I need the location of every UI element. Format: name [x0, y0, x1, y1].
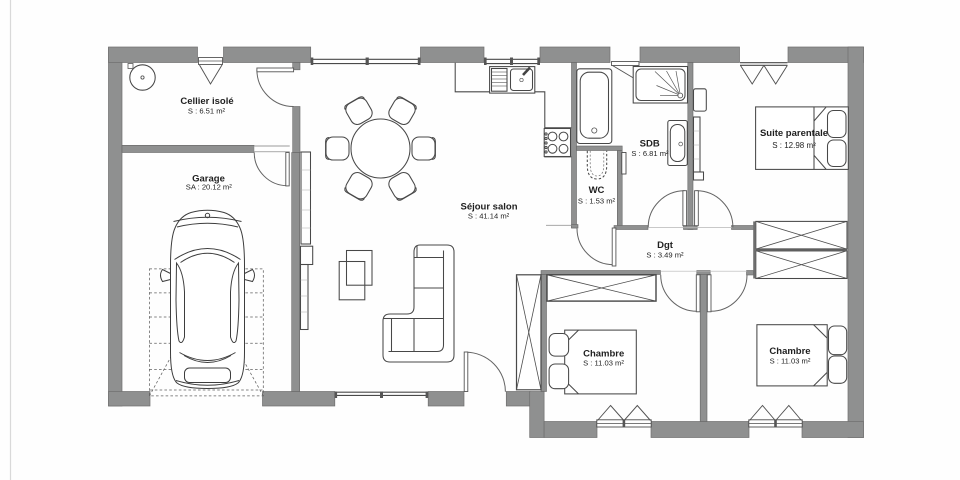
svg-text:S : 3.49 m²: S : 3.49 m² — [646, 251, 684, 260]
svg-text:WC: WC — [589, 185, 605, 196]
svg-text:Chambre: Chambre — [769, 346, 810, 357]
svg-text:S : 11.03 m²: S : 11.03 m² — [770, 357, 811, 366]
svg-text:S : 11.03 m²: S : 11.03 m² — [583, 359, 624, 368]
svg-text:S : 1.53 m²: S : 1.53 m² — [578, 196, 616, 205]
svg-text:S : 41.14 m²: S : 41.14 m² — [468, 211, 510, 220]
svg-text:S : 6.81 m²: S : 6.81 m² — [631, 149, 669, 158]
svg-text:S : 6.51 m²: S : 6.51 m² — [188, 107, 226, 116]
svg-text:Dgt: Dgt — [657, 240, 674, 251]
svg-text:Suite parentale: Suite parentale — [760, 128, 828, 139]
svg-text:SDB: SDB — [640, 139, 660, 150]
svg-text:Cellier isolé: Cellier isolé — [180, 96, 233, 107]
svg-text:S : 12.98 m²: S : 12.98 m² — [772, 141, 816, 150]
svg-text:SA : 20.12 m²: SA : 20.12 m² — [186, 183, 232, 192]
